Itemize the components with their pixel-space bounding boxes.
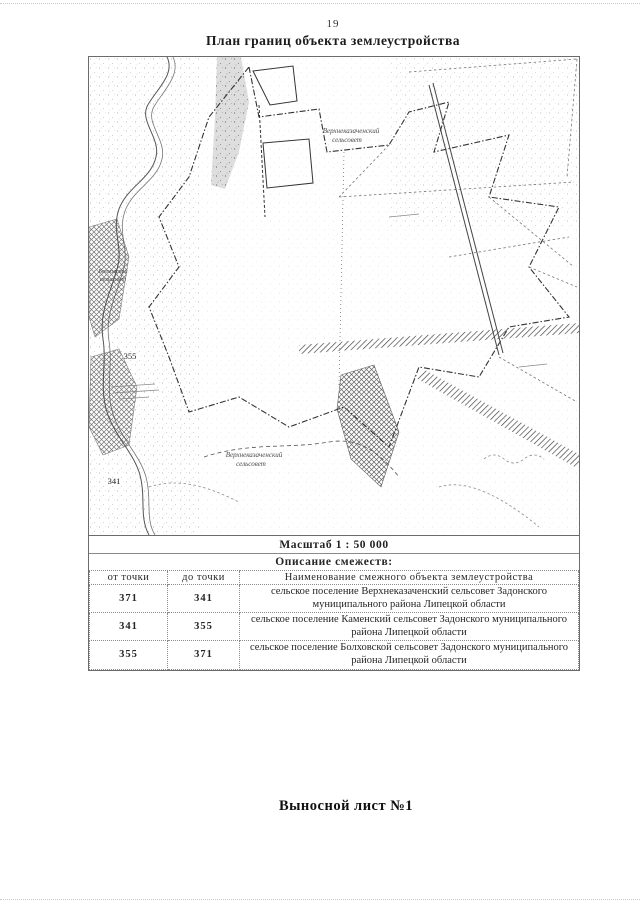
table-title-row: Описание смежеств: xyxy=(90,554,579,571)
insert-sheet-label: Выносной лист №1 xyxy=(26,798,640,815)
table-row: 341 355 сельское поселение Каменский сел… xyxy=(90,613,579,641)
boundary-map: Верхнеказаченский сельсовет Болховской с… xyxy=(89,57,579,535)
table-row: 371 341 сельское поселение Верхнеказачен… xyxy=(90,585,579,613)
table-row: 355 371 сельское поселение Болховской се… xyxy=(90,641,579,669)
to-point-cell: 355 xyxy=(168,613,240,641)
scan-artifact-bottom xyxy=(0,899,640,900)
scan-noise-topright xyxy=(389,57,579,227)
adjacent-object-cell: сельское поселение Верхнеказаченский сел… xyxy=(240,585,579,613)
table-header-row: от точки до точки Наименование смежного … xyxy=(90,571,579,585)
adjacent-object-cell: сельское поселение Каменский сельсовет З… xyxy=(240,613,579,641)
page-number: 19 xyxy=(88,18,578,30)
settlement-label-bottom-line2: сельсовет xyxy=(236,460,266,468)
col-header-to-point: до точки xyxy=(168,571,240,585)
settlement-label-bottom-line1: Верхнеказаченский xyxy=(226,451,283,459)
settlement-label-top-line1: Верхнеказаченский xyxy=(323,127,380,135)
adjacency-table-body: 371 341 сельское поселение Верхнеказачен… xyxy=(90,585,579,670)
table-title: Описание смежеств: xyxy=(90,554,579,571)
scan-artifact-top xyxy=(0,3,640,4)
adjacent-object-cell: сельское поселение Болховской сельсовет … xyxy=(240,641,579,669)
map-scale-caption: Масштаб 1 : 50 000 xyxy=(89,535,579,554)
page-title: План границ объекта землеустройства xyxy=(88,33,578,49)
to-point-cell: 371 xyxy=(168,641,240,669)
point-label-341: 341 xyxy=(108,476,121,486)
map-area: Верхнеказаченский сельсовет Болховской с… xyxy=(89,57,579,535)
settlement-label-left-line2: сельсовет xyxy=(100,276,127,283)
col-header-from-point: от точки xyxy=(90,571,168,585)
plan-frame: Верхнеказаченский сельсовет Болховской с… xyxy=(88,56,580,671)
settlement-label-left-line1: Болховской xyxy=(97,268,128,275)
from-point-cell: 355 xyxy=(90,641,168,669)
adjacency-table: Описание смежеств: от точки до точки Наи… xyxy=(89,554,579,670)
settlement-label-top-line2: сельсовет xyxy=(332,136,362,144)
point-label-355: 355 xyxy=(124,351,137,361)
col-header-adjacent-object: Наименование смежного объекта землеустро… xyxy=(240,571,579,585)
from-point-cell: 341 xyxy=(90,613,168,641)
from-point-cell: 371 xyxy=(90,585,168,613)
to-point-cell: 341 xyxy=(168,585,240,613)
